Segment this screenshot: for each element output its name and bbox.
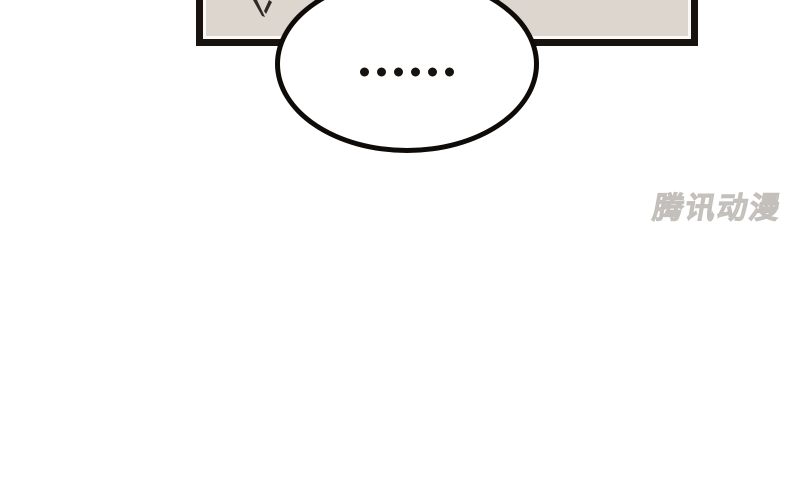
tencent-comics-watermark: 腾讯动漫 — [650, 183, 786, 227]
ellipsis-dot — [360, 68, 369, 77]
hair-spike-artwork — [249, 0, 275, 20]
ellipsis-dot — [411, 68, 420, 77]
ellipsis-dot — [377, 68, 386, 77]
ellipsis-dot — [428, 68, 437, 77]
ellipsis-dot — [445, 68, 454, 77]
ellipsis-dot — [394, 68, 403, 77]
speech-bubble-ellipsis — [360, 68, 454, 77]
comic-page: 腾讯动漫 — [0, 0, 800, 500]
speech-bubble — [275, 0, 539, 153]
